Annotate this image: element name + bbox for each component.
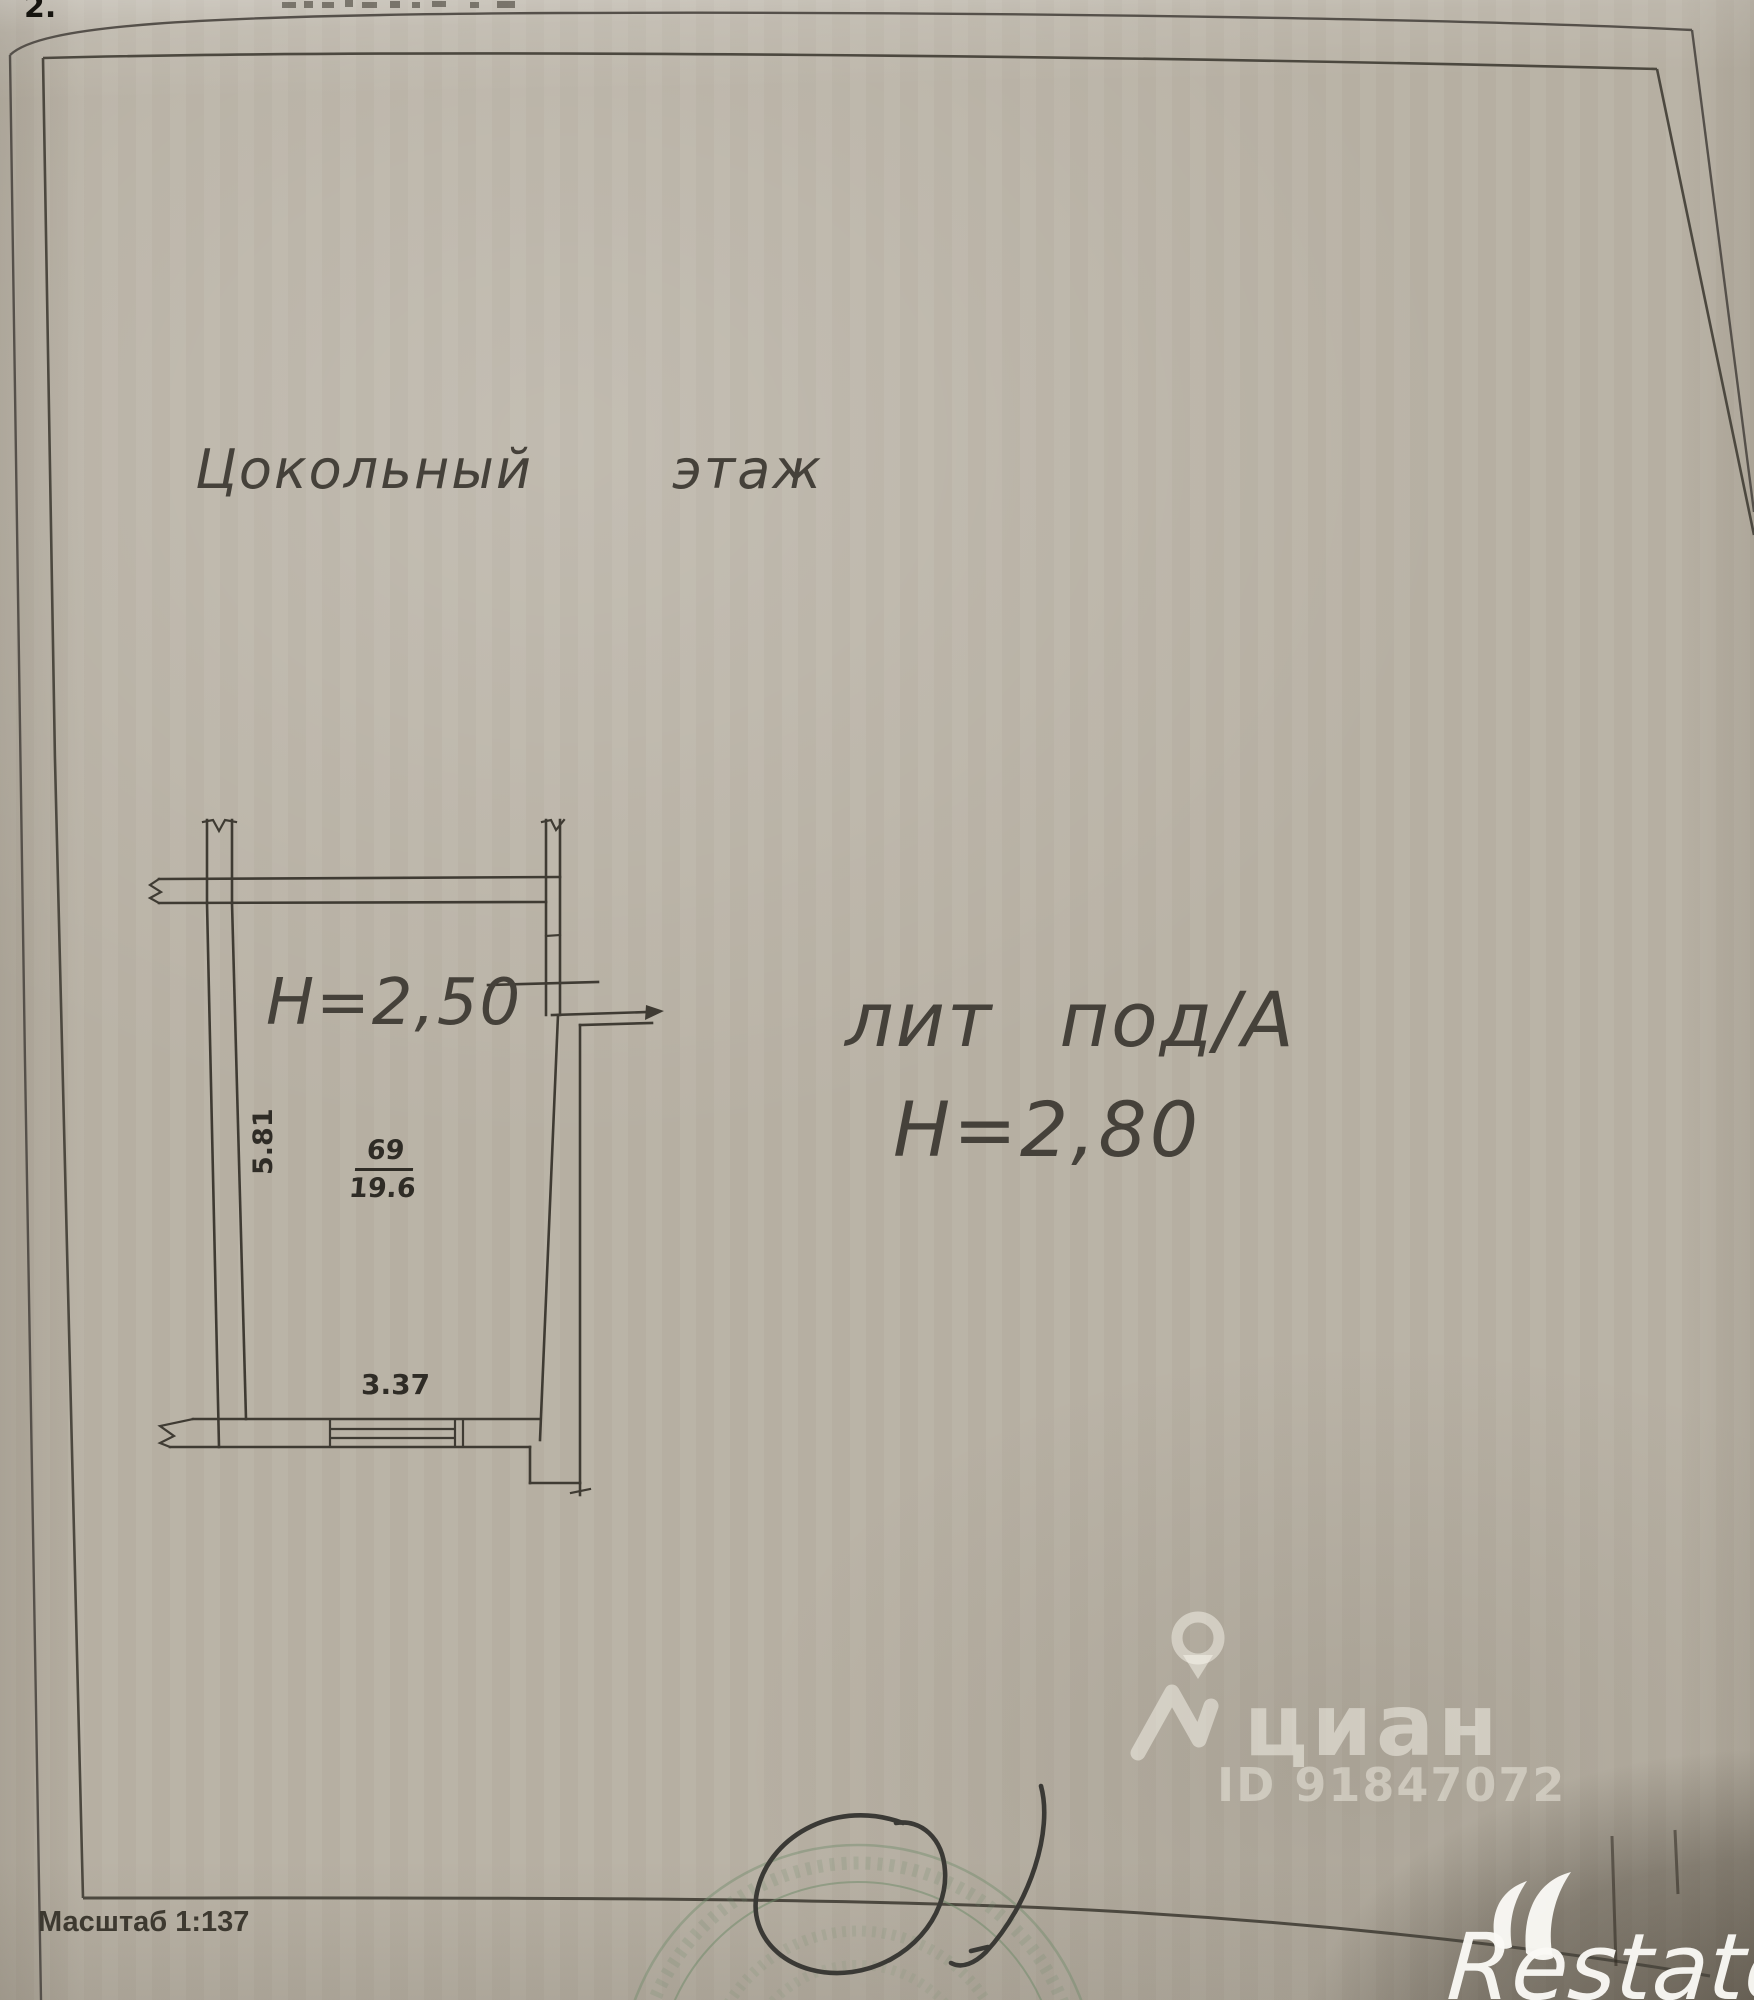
window-symbol [330, 1419, 463, 1447]
restate-watermark-wordmark: Restate [1444, 1914, 1754, 2000]
bottom-wall-dimension-label: 3.37 [361, 1368, 430, 1401]
building-ceiling-height-label: Н=2,80 [893, 1085, 1201, 1174]
cian-watermark-id: ID 91847072 [1217, 1758, 1566, 1812]
wall-arrow-tick [645, 1005, 664, 1020]
page-corner-mark: 2. [24, 0, 56, 25]
round-stamp [620, 1845, 1096, 2000]
cian-logo-icon [1138, 1692, 1211, 1753]
floor-plan-title: Цокольный этаж [195, 438, 823, 501]
left-wall-dimension-label: 5.81 [248, 1108, 279, 1175]
room-number-area-fraction: 69 19.6 [342, 1135, 426, 1204]
signature [756, 1786, 1045, 1973]
room-area-label: 19.6 [342, 1173, 423, 1204]
location-pin-icon [1177, 1617, 1219, 1679]
room-ceiling-height-label: Н=2,50 [266, 966, 522, 1040]
scanned-floor-plan-page: 2. Цокольный этаж Н=2,50 лит под/А Н=2,8… [0, 0, 1754, 2000]
room-number-label: 69 [355, 1135, 416, 1171]
building-litera-label: лит под/А [845, 975, 1296, 1064]
scale-label: Масштаб 1:137 [38, 1906, 249, 1939]
cropped-top-text [282, 0, 515, 8]
